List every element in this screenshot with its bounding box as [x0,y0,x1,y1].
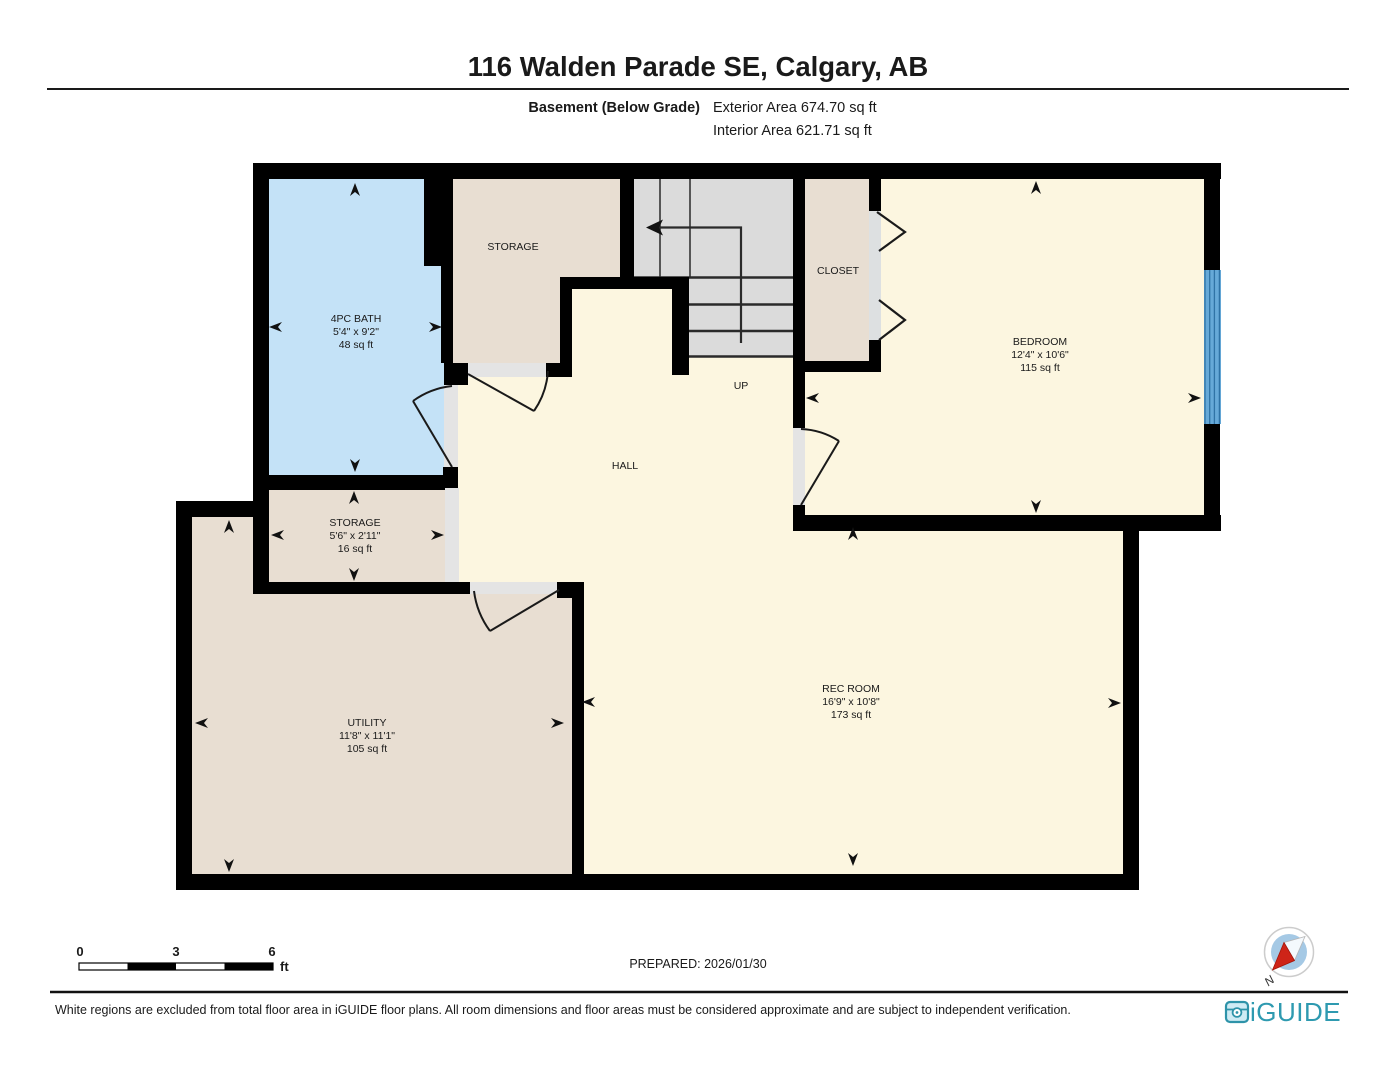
svg-text:PREPARED: 2026/01/30: PREPARED: 2026/01/30 [629,957,766,971]
svg-text:STORAGE: STORAGE [329,517,380,529]
svg-text:6: 6 [268,944,275,959]
svg-text:Interior Area 621.71 sq ft: Interior Area 621.71 sq ft [713,123,872,139]
svg-text:HALL: HALL [612,460,638,472]
svg-text:3: 3 [172,944,179,959]
svg-text:UTILITY: UTILITY [347,717,386,729]
svg-text:BEDROOM: BEDROOM [1013,336,1067,348]
svg-text:UP: UP [734,380,749,392]
svg-text:173 sq ft: 173 sq ft [831,709,871,721]
svg-text:48 sq ft: 48 sq ft [339,339,374,351]
svg-text:5'4" x 9'2": 5'4" x 9'2" [333,326,379,338]
svg-text:STORAGE: STORAGE [487,241,538,253]
svg-text:CLOSET: CLOSET [817,265,860,277]
svg-text:12'4" x 10'6": 12'4" x 10'6" [1011,349,1069,361]
svg-text:115 sq ft: 115 sq ft [1020,362,1060,374]
svg-text:0: 0 [76,944,83,959]
svg-text:ft: ft [280,959,289,974]
svg-text:16'9" x 10'8": 16'9" x 10'8" [822,696,880,708]
svg-text:Basement (Below Grade): Basement (Below Grade) [528,100,700,116]
svg-text:N: N [1262,972,1278,989]
svg-text:16 sq ft: 16 sq ft [338,543,373,555]
svg-text:11'8" x 11'1": 11'8" x 11'1" [339,730,395,742]
svg-text:White regions are excluded fro: White regions are excluded from total fl… [55,1003,1071,1017]
svg-text:REC ROOM: REC ROOM [822,683,880,695]
svg-text:Exterior Area 674.70 sq ft: Exterior Area 674.70 sq ft [713,100,877,116]
svg-text:4PC BATH: 4PC BATH [331,313,382,325]
svg-text:5'6" x 2'11": 5'6" x 2'11" [330,530,381,542]
svg-text:iGUIDE: iGUIDE [1250,997,1341,1027]
svg-text:105 sq ft: 105 sq ft [347,743,387,755]
svg-text:116 Walden Parade SE, Calgary,: 116 Walden Parade SE, Calgary, AB [468,51,929,82]
